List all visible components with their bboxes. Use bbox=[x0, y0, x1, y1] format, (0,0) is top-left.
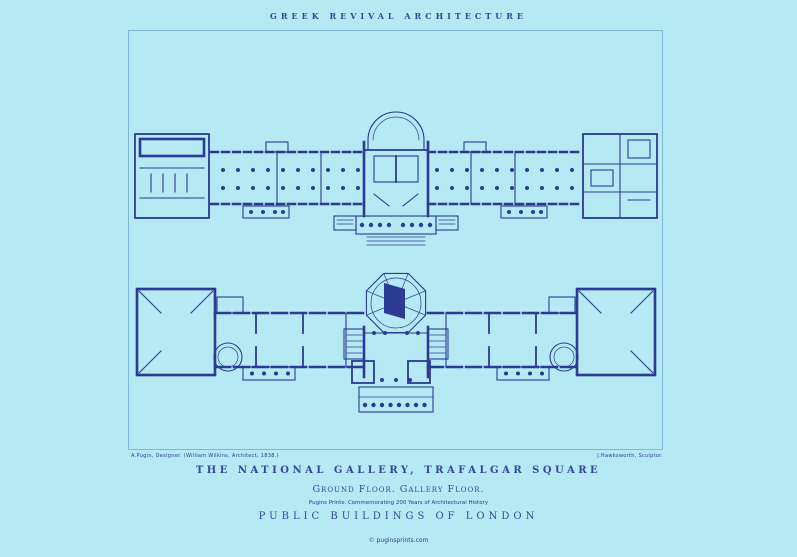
credit-engraver: J.Hawksworth, Sculptor. bbox=[597, 453, 663, 459]
poster-header: GREEK REVIVAL ARCHITECTURE bbox=[0, 11, 797, 21]
credit-designer: A.Pugin, Designer. (William Wilkins, Arc… bbox=[131, 453, 279, 459]
gallery-floor-plan bbox=[131, 267, 661, 422]
ground-floor-plan bbox=[131, 107, 661, 259]
plate-frame bbox=[128, 30, 663, 450]
poster-series: PUBLIC BUILDINGS OF LONDON bbox=[0, 511, 797, 522]
poster-footer-credit: © puginsprints.com bbox=[0, 537, 797, 544]
poster-title: THE NATIONAL GALLERY, TRAFALGAR SQUARE bbox=[0, 465, 797, 476]
poster-tagline: Pugins Prints: Commemorating 200 Years o… bbox=[0, 500, 797, 506]
poster-subtitle: Ground Floor. Gallery Floor. bbox=[0, 484, 797, 495]
